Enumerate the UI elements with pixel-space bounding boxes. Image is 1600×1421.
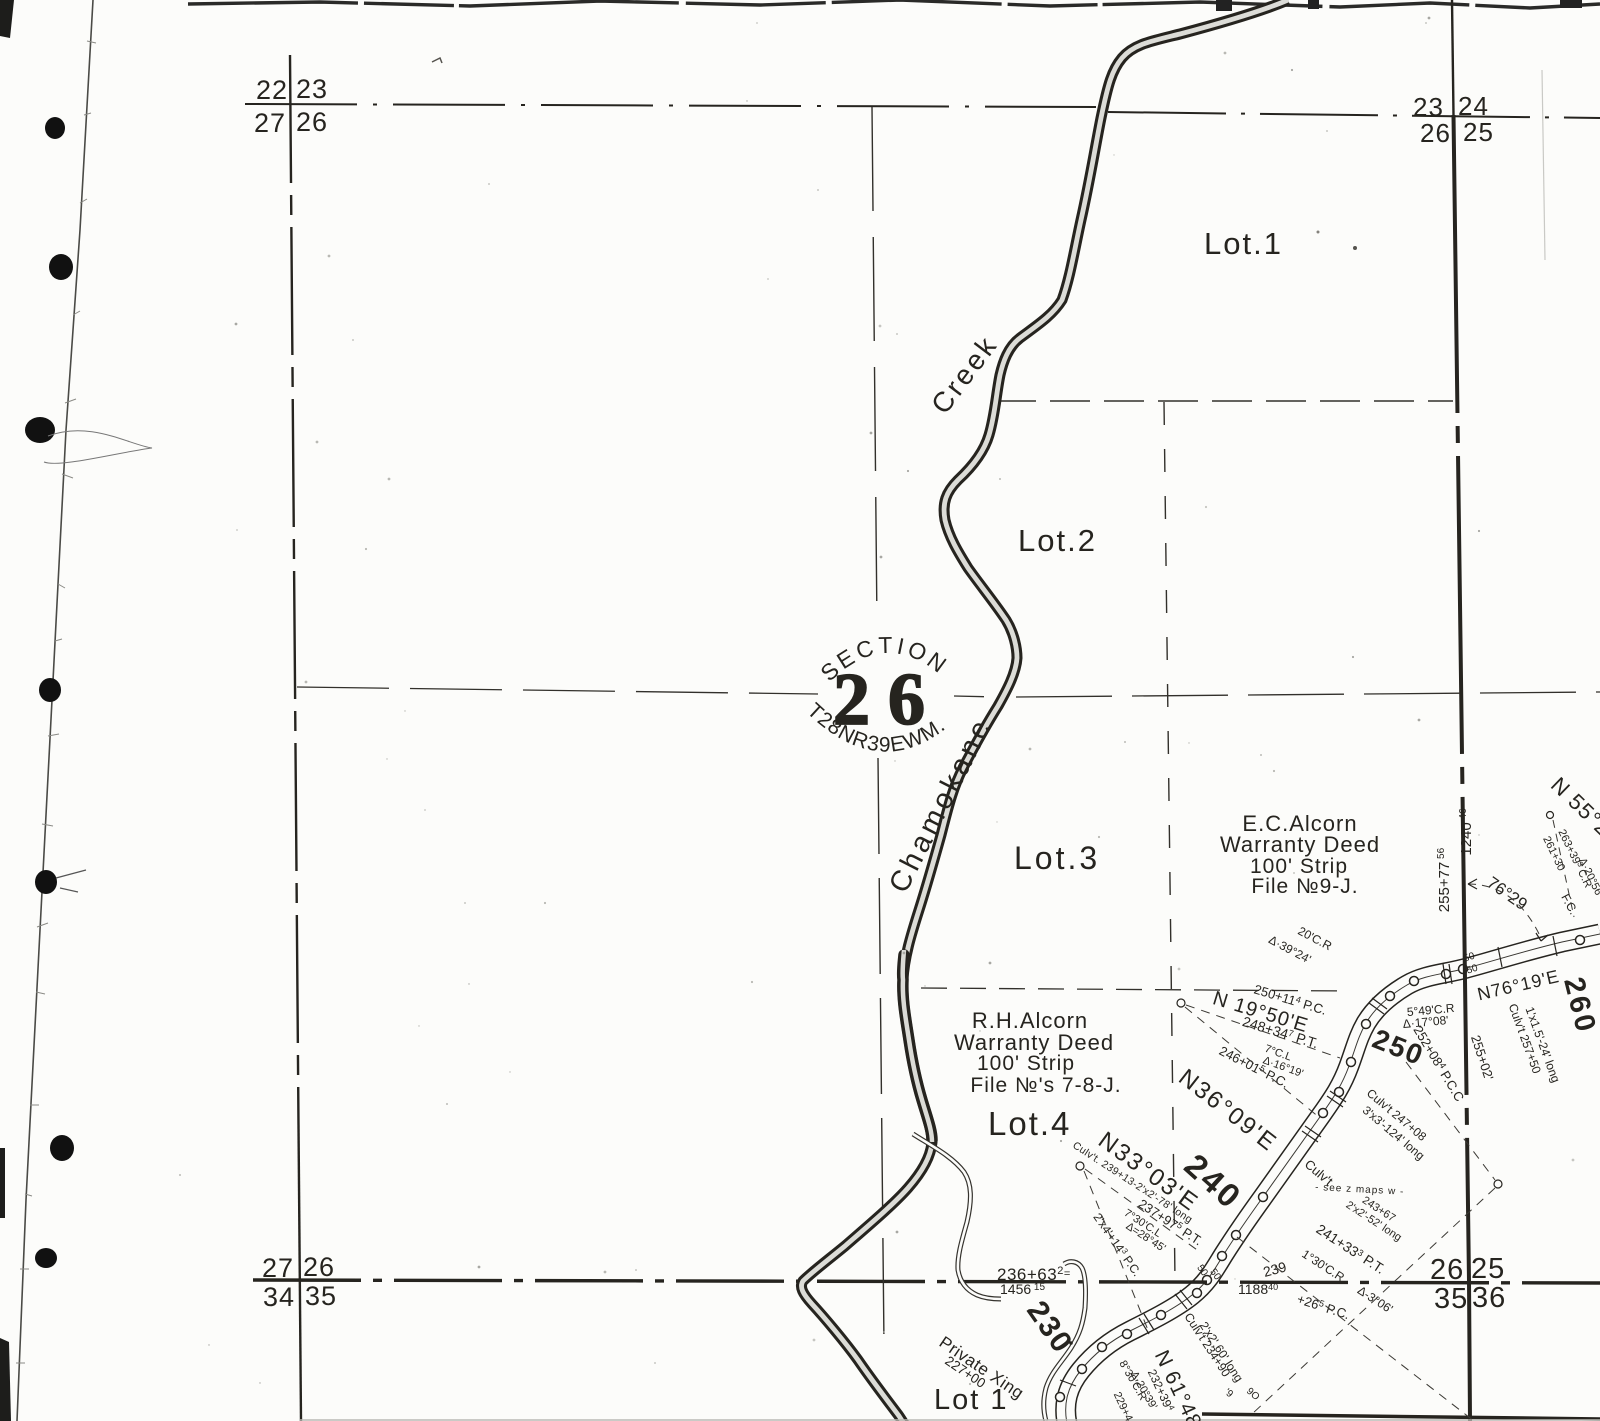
svg-text:26: 26 xyxy=(303,1252,335,1282)
svg-text:25: 25 xyxy=(1471,1253,1505,1285)
svg-text:26: 26 xyxy=(1420,118,1451,148)
svg-text:Lot.3: Lot.3 xyxy=(1014,840,1100,876)
svg-text:36: 36 xyxy=(1472,1282,1506,1314)
svg-text:34: 34 xyxy=(263,1282,295,1312)
svg-text:File №'s 7-8-J.: File №'s 7-8-J. xyxy=(970,1074,1121,1097)
svg-text:100' Strip: 100' Strip xyxy=(977,1052,1075,1075)
svg-text:Warranty Deed: Warranty Deed xyxy=(1220,832,1380,857)
svg-text:23: 23 xyxy=(296,74,328,104)
svg-text:27: 27 xyxy=(254,108,286,138)
svg-text:File №9-J.: File №9-J. xyxy=(1251,875,1358,898)
svg-text:Lot.1: Lot.1 xyxy=(1204,226,1283,261)
svg-text:35: 35 xyxy=(305,1281,337,1311)
svg-text:22: 22 xyxy=(256,75,288,105)
svg-text:25: 25 xyxy=(1463,117,1494,147)
svg-text:26: 26 xyxy=(296,107,328,137)
svg-text:27: 27 xyxy=(262,1253,294,1283)
svg-text:35: 35 xyxy=(1434,1283,1468,1315)
svg-text:Lot.4: Lot.4 xyxy=(988,1105,1071,1142)
svg-text:Lot.2: Lot.2 xyxy=(1018,523,1097,558)
svg-text:26: 26 xyxy=(1430,1254,1464,1286)
